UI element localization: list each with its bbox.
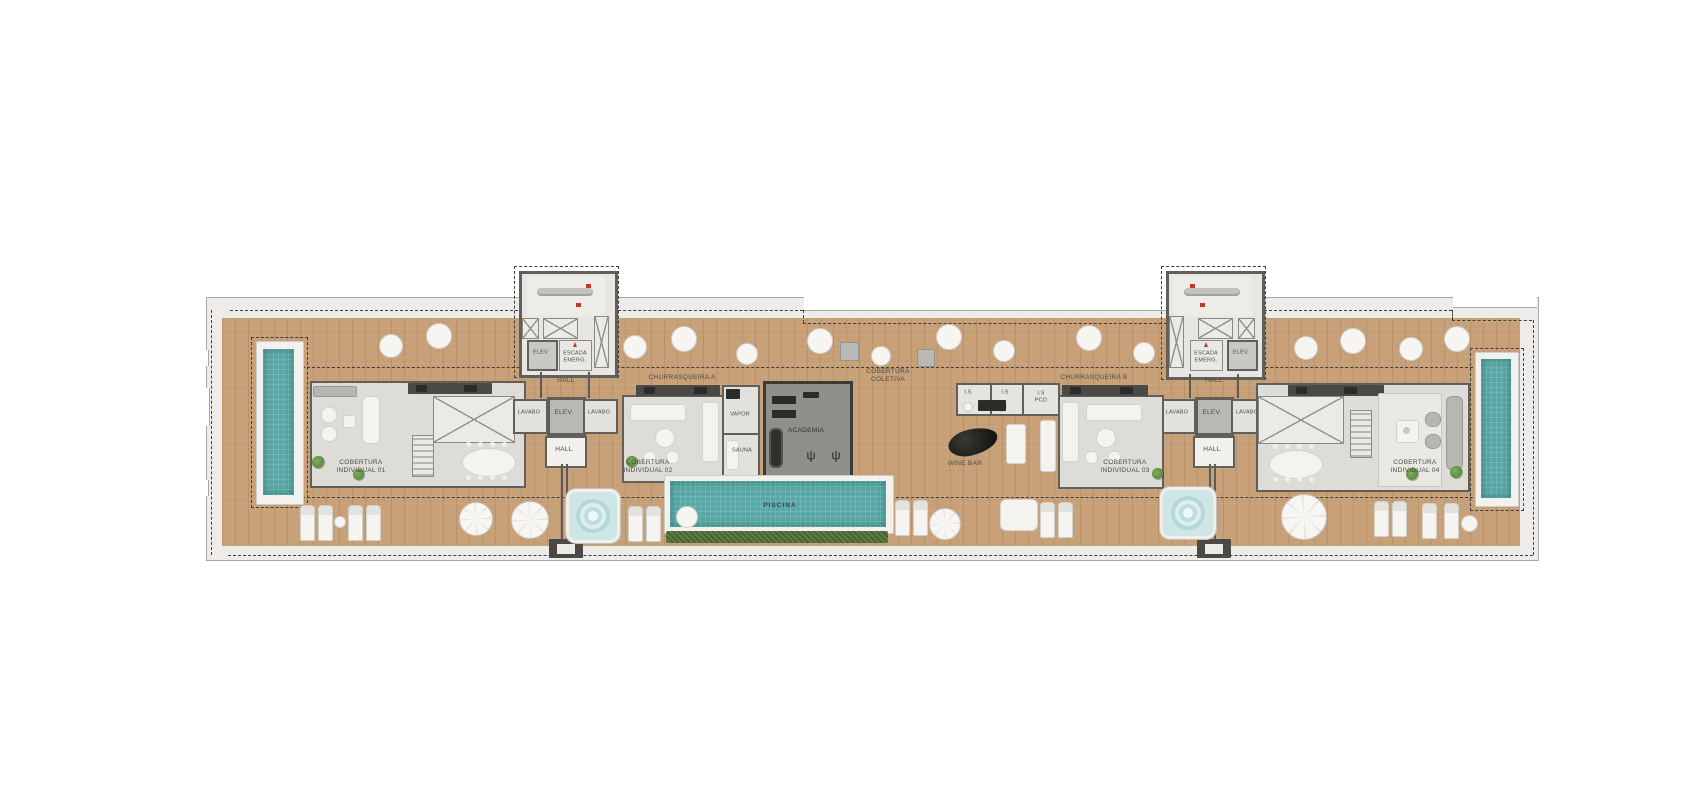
cobertura-coletiva-label: COBERTURA COLETIVA xyxy=(866,368,909,384)
deck-table xyxy=(1133,342,1155,364)
deck-planter xyxy=(840,342,859,361)
parasol xyxy=(511,501,549,539)
red-marker xyxy=(586,284,591,288)
vapor-label: VAPOR xyxy=(730,412,750,419)
sun-lounger xyxy=(300,505,315,541)
tower-left-machine-room xyxy=(527,277,605,316)
armchair xyxy=(321,426,337,442)
cooktop-icon xyxy=(416,385,427,392)
unit-04-void-hatch xyxy=(1258,396,1344,444)
red-marker xyxy=(576,303,581,307)
sink-icon xyxy=(1344,387,1357,394)
unit-04-label: COBERTURA INDIVIDUAL 04 xyxy=(1390,459,1439,475)
core-elev-label: ELEV. xyxy=(554,409,573,417)
shaft xyxy=(594,316,609,368)
deck-planter xyxy=(917,349,935,367)
boundary-dash xyxy=(1533,320,1534,555)
bar-cabinet xyxy=(1040,420,1056,472)
sauna-label: SAUNA xyxy=(732,448,752,455)
deck-table xyxy=(623,335,647,359)
lavabo-room xyxy=(513,399,548,434)
sun-lounger xyxy=(1058,502,1073,538)
red-marker xyxy=(1190,284,1195,288)
lavabo-room xyxy=(583,399,618,434)
grill-icon xyxy=(644,387,655,394)
gym-bench xyxy=(772,396,796,404)
is-pcd-label: I.S PCD xyxy=(1035,390,1047,403)
piscina-label: PISCINA xyxy=(763,502,796,510)
deck-table xyxy=(676,506,698,528)
tower-right-escada-label: ESCADA EMERG. xyxy=(1194,350,1218,363)
slab-step-line-mid xyxy=(804,310,1169,311)
table-dot xyxy=(1403,427,1410,434)
elevator-shaft xyxy=(1238,318,1255,339)
deck-table xyxy=(1340,328,1366,354)
deck-table xyxy=(426,323,452,349)
bar-cabinet xyxy=(1006,424,1026,464)
churrasqueira-a-label: CHURRASQUEIRA A xyxy=(649,374,716,382)
boundary-dash xyxy=(230,310,518,311)
stair-exit-slot xyxy=(1205,544,1223,554)
armchair xyxy=(1425,412,1441,427)
hall-label: HALL xyxy=(1203,446,1220,454)
deck-table xyxy=(1444,326,1470,352)
wine-bar-label: WINE BAR xyxy=(948,460,983,468)
cabinet xyxy=(702,402,719,462)
weight-rack-icon: ψ xyxy=(806,449,815,462)
steam-fixture xyxy=(726,389,740,399)
is-label: I.S xyxy=(964,390,971,397)
dining-table xyxy=(462,448,516,477)
sofa xyxy=(1446,396,1463,470)
weight-rack-icon: ψ xyxy=(831,449,840,462)
wall-stub xyxy=(588,372,590,398)
elevator-shaft xyxy=(1198,318,1233,339)
parasol xyxy=(929,508,961,540)
armchair xyxy=(321,407,337,423)
corridor-wall xyxy=(561,464,563,540)
boundary-dash xyxy=(803,310,804,323)
unit-03-label: COBERTURA INDIVIDUAL 03 xyxy=(1100,459,1149,475)
gym-machine xyxy=(803,392,819,398)
shaft xyxy=(1169,316,1184,368)
elevator-shaft xyxy=(522,318,539,339)
round-table xyxy=(655,428,675,448)
academia-label: ACADEMIA xyxy=(788,427,824,435)
lavabo-label: LAVABO xyxy=(1166,410,1188,417)
unit-01-label: COBERTURA INDIVIDUAL 01 xyxy=(336,459,385,475)
grill-icon xyxy=(1070,387,1081,394)
red-marker xyxy=(1200,303,1205,307)
slab-notch xyxy=(198,350,209,366)
core-elev-label: ELEV. xyxy=(1202,409,1221,417)
wall-stub xyxy=(540,372,542,398)
hedge xyxy=(666,531,888,543)
sun-lounger xyxy=(628,506,643,542)
deck-table xyxy=(379,334,403,358)
boundary-dash xyxy=(1259,310,1452,311)
tower-right-machine-room xyxy=(1174,277,1252,316)
daybed xyxy=(1000,499,1038,531)
chaise xyxy=(362,396,380,444)
lap-pool-right xyxy=(1481,359,1511,498)
sun-lounger xyxy=(318,505,333,541)
sun-lounger xyxy=(913,500,928,536)
hall-label: HALL xyxy=(557,377,574,385)
tower-left-elev-label: ELEV. xyxy=(533,350,549,357)
round-table xyxy=(1096,428,1116,448)
unit-01-cabinet xyxy=(313,386,357,397)
slab-step-cover-right xyxy=(1453,294,1537,307)
deck-table xyxy=(736,343,758,365)
chair xyxy=(1085,451,1098,464)
dining-chairs xyxy=(1273,444,1278,449)
lavabo-room xyxy=(1161,399,1196,434)
cabinet xyxy=(1062,402,1079,462)
dining-chairs xyxy=(466,442,471,447)
roof-louver xyxy=(1184,288,1240,296)
elevator-shaft xyxy=(543,318,578,339)
unit-01-void-hatch xyxy=(433,396,515,443)
deck-table xyxy=(993,340,1015,362)
churrasqueira-b-label: CHURRASQUEIRA B xyxy=(1060,374,1127,382)
deck-table xyxy=(936,324,962,350)
hall-label: HALL xyxy=(555,446,572,454)
boundary-dash xyxy=(1452,310,1453,320)
deck-table xyxy=(671,326,697,352)
cooktop-icon xyxy=(1296,387,1307,394)
lavabo-label: LAVABO xyxy=(518,410,540,417)
sun-lounger xyxy=(348,505,363,541)
sun-lounger xyxy=(1392,501,1407,537)
sun-lounger xyxy=(1040,502,1055,538)
is-label: I.S xyxy=(1001,390,1008,397)
unit-04-stairs xyxy=(1350,410,1372,458)
sun-lounger xyxy=(1444,503,1459,539)
jacuzzi xyxy=(1160,487,1216,539)
floor-plan-canvas: ELEV. ESCADA EMERG. ESCADA EMERG. ELEV. … xyxy=(0,0,1693,800)
sofa xyxy=(1086,404,1142,421)
deck-table xyxy=(871,346,891,366)
parasol xyxy=(459,502,493,536)
wall-stub xyxy=(1237,374,1239,398)
parasol xyxy=(1281,494,1327,540)
sun-lounger xyxy=(366,505,381,541)
boundary-dash xyxy=(613,310,803,311)
wall-stub xyxy=(1189,374,1191,398)
sink-icon xyxy=(1120,387,1133,394)
slab-step-line-right xyxy=(1453,307,1537,308)
boundary-dash xyxy=(211,310,212,555)
sun-lounger xyxy=(1422,503,1437,539)
gym-bench xyxy=(772,410,796,418)
toilet xyxy=(963,402,973,412)
boundary-dash xyxy=(803,323,1167,324)
sun-lounger xyxy=(1374,501,1389,537)
slab-notch xyxy=(198,480,209,496)
side-table xyxy=(343,415,356,428)
sun-lounger xyxy=(895,500,910,536)
deck-table xyxy=(1399,337,1423,361)
tower-right-elev-label: ELEV. xyxy=(1233,350,1249,357)
sofa xyxy=(630,404,686,421)
stair-exit-slot xyxy=(557,544,575,554)
roof-louver xyxy=(537,288,593,296)
boundary-dash xyxy=(228,555,1533,556)
deck-ball xyxy=(334,516,346,528)
boundary-dash xyxy=(1452,320,1532,321)
lavabo-label: LAVABO xyxy=(588,410,610,417)
tower-left-escada-label: ESCADA EMERG. xyxy=(563,350,587,363)
sink-icon xyxy=(464,385,477,392)
sauna-bench xyxy=(726,440,739,470)
hall-label: HALL xyxy=(1205,377,1222,385)
dining-table xyxy=(1269,450,1323,479)
lavabo-label: LAVABO xyxy=(1236,410,1258,417)
deck-table xyxy=(1076,325,1102,351)
is-counter xyxy=(978,400,1006,411)
lap-pool-left xyxy=(263,349,294,495)
jacuzzi xyxy=(566,489,620,543)
sun-lounger xyxy=(646,506,661,542)
deck-table xyxy=(1461,515,1478,532)
unit-02-label: COBERTURA INDIVIDUAL 02 xyxy=(623,459,672,475)
armchair xyxy=(1425,434,1441,449)
treadmill xyxy=(769,428,783,468)
deck-table xyxy=(807,328,833,354)
deck-table xyxy=(1294,336,1318,360)
slab-step-cover-mid xyxy=(804,294,1169,310)
slab-notch xyxy=(196,388,210,426)
sink-icon xyxy=(694,387,707,394)
unit-01-stairs xyxy=(412,435,434,477)
